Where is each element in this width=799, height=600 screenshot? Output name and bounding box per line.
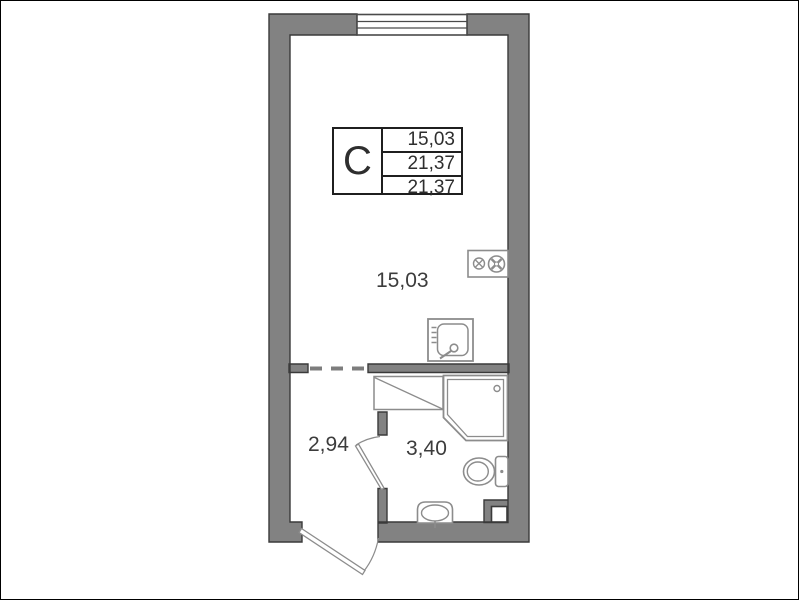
shower-cabin-icon <box>444 376 508 441</box>
unit-type-label: C <box>334 129 383 193</box>
unit-info-table: C 15,03 21,37 21,37 <box>332 127 463 195</box>
window-icon <box>357 15 467 36</box>
entrance-door-swing <box>299 529 379 575</box>
vent-shaft-icon <box>492 507 508 523</box>
unit-area-row-total: 21,37 <box>383 151 461 175</box>
unit-area-rows: 15,03 21,37 21,37 <box>383 129 461 193</box>
bathroom-door-panel <box>374 377 443 410</box>
kitchen-sink-icon <box>428 319 473 361</box>
hall-area-label: 2,94 <box>308 433 349 457</box>
unit-area-row-living: 15,03 <box>383 129 461 151</box>
floor-plan-drawing <box>0 0 799 600</box>
living-room-area-label: 15,03 <box>376 269 429 293</box>
toilet-icon <box>464 457 509 487</box>
bathroom-area-label: 3,40 <box>406 437 447 461</box>
bathroom-door-swing <box>356 437 385 490</box>
unit-area-row-total-reduced: 21,37 <box>383 175 461 199</box>
stove-icon <box>468 251 508 278</box>
